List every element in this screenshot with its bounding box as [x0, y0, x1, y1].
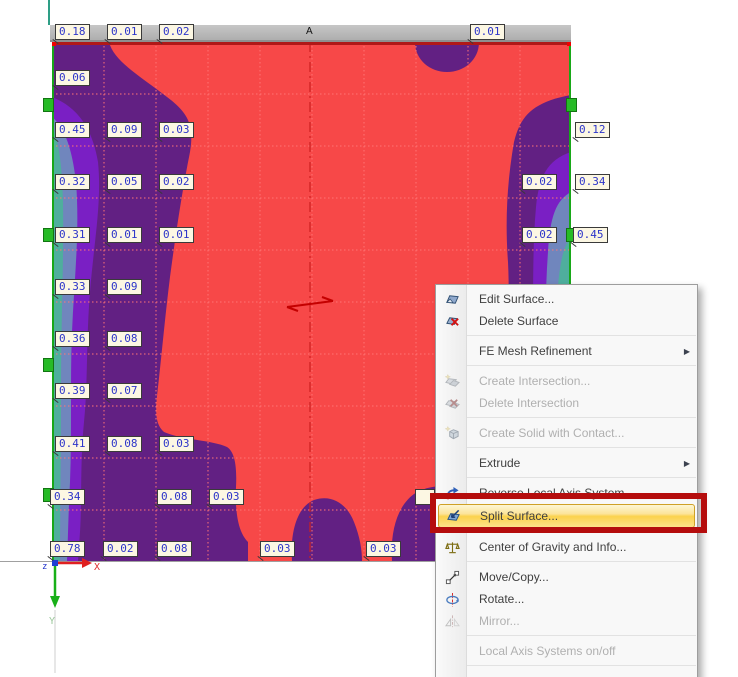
menu-separator	[436, 332, 697, 340]
value-label: 0.78	[50, 541, 85, 557]
menu-item-create-intersection: Create Intersection...	[436, 370, 697, 392]
menu-separator	[436, 662, 697, 670]
submenu-arrow-icon: ▶	[684, 347, 690, 356]
value-label: 0.03	[209, 489, 244, 505]
value-label: 0.33	[55, 279, 90, 295]
value-label: 0.03	[260, 541, 295, 557]
menu-item-label: Edit Surface...	[465, 292, 554, 306]
value-label: 0.02	[103, 541, 138, 557]
mirror-icon	[439, 613, 465, 629]
value-label: 0.03	[159, 436, 194, 452]
move-copy-icon	[439, 569, 465, 585]
annotation-highlight-box	[430, 493, 707, 533]
menu-item-fe-mesh-refinement[interactable]: FE Mesh Refinement▶	[436, 340, 697, 362]
value-label: 0.31	[55, 227, 90, 243]
menu-item-local-axis-systems-on-off: Local Axis Systems on/off	[436, 640, 697, 662]
menu-item-extrude[interactable]: Extrude▶	[436, 452, 697, 474]
support-icon	[43, 228, 54, 242]
value-label: 0.36	[55, 331, 90, 347]
menu-item-mirror: Mirror...	[436, 610, 697, 632]
coordinate-system: X Y z	[20, 548, 130, 677]
value-label: 0.34	[575, 174, 610, 190]
z-axis-label: z	[42, 562, 47, 572]
menu-item-edit-surface[interactable]: Edit Surface...	[436, 288, 697, 310]
value-label: 0.03	[366, 541, 401, 557]
menu-item-label: Local Axis Systems on/off	[465, 644, 616, 658]
section-label: A	[306, 26, 313, 37]
menu-icon-empty	[439, 643, 465, 659]
menu-icon-empty	[439, 343, 465, 359]
menu-item-label: Delete Surface	[465, 314, 558, 328]
value-label: 0.01	[159, 227, 194, 243]
value-label: 0.01	[470, 24, 505, 40]
value-label: 0.39	[55, 383, 90, 399]
menu-separator	[436, 362, 697, 370]
value-label: 0.41	[55, 436, 90, 452]
menu-separator	[436, 632, 697, 640]
menu-item-label: Mirror...	[465, 614, 520, 628]
edit-surface-icon	[439, 291, 465, 307]
menu-separator	[436, 558, 697, 566]
value-label: 0.02	[159, 24, 194, 40]
menu-item-label: Create Intersection...	[465, 374, 590, 388]
menu-separator	[436, 444, 697, 452]
delete-intersection-icon	[439, 395, 465, 411]
value-label: 0.08	[107, 331, 142, 347]
value-label: 0.09	[107, 122, 142, 138]
create-intersection-icon	[439, 373, 465, 389]
support-icon	[43, 98, 54, 112]
value-label: 0.03	[159, 122, 194, 138]
menu-item-label: FE Mesh Refinement	[465, 344, 592, 358]
value-label: 0.07	[107, 383, 142, 399]
value-label: 0.08	[157, 489, 192, 505]
menu-item-delete-surface[interactable]: Delete Surface	[436, 310, 697, 332]
center-of-gravity-icon	[439, 539, 465, 555]
menu-item-center-of-gravity-and-info[interactable]: Center of Gravity and Info...	[436, 536, 697, 558]
support-icon	[43, 358, 54, 372]
menu-item-label: Delete Intersection	[465, 396, 579, 410]
create-solid-icon	[439, 425, 465, 441]
value-label: 0.01	[107, 227, 142, 243]
x-axis-label: X	[94, 562, 100, 573]
menu-separator	[436, 474, 697, 482]
submenu-arrow-icon: ▶	[684, 459, 690, 468]
value-label: 0.08	[157, 541, 192, 557]
menu-item-label: Rotate...	[465, 592, 524, 606]
value-label: 0.45	[55, 122, 90, 138]
support-icon	[566, 98, 577, 112]
value-label: 0.02	[159, 174, 194, 190]
corner-node-right	[567, 42, 571, 46]
value-label: 0.05	[107, 174, 142, 190]
value-label: 0.06	[55, 70, 90, 86]
value-label: 0.09	[107, 279, 142, 295]
value-label: 0.34	[50, 489, 85, 505]
value-label: 0.01	[107, 24, 142, 40]
value-label: 0.18	[55, 24, 90, 40]
value-label: 0.32	[55, 174, 90, 190]
menu-item-label: Extrude	[465, 456, 520, 470]
menu-item-create-solid-with-contact: Create Solid with Contact...	[436, 422, 697, 444]
menu-item-delete-intersection: Delete Intersection	[436, 392, 697, 414]
menu-item-label: Move/Copy...	[465, 570, 549, 584]
menu-item-label: Center of Gravity and Info...	[465, 540, 626, 554]
menu-icon-empty	[439, 455, 465, 471]
menu-separator	[436, 414, 697, 422]
menu-item-rotate[interactable]: Rotate...	[436, 588, 697, 610]
value-label: 0.02	[522, 174, 557, 190]
menu-item-move-copy[interactable]: Move/Copy...	[436, 566, 697, 588]
application-canvas: A	[0, 0, 738, 677]
menu-item-label: Create Solid with Contact...	[465, 426, 624, 440]
rotate-icon	[439, 591, 465, 607]
value-label: 0.08	[107, 436, 142, 452]
edge-line-top-left	[48, 0, 50, 25]
y-axis-label: Y	[49, 616, 55, 627]
delete-surface-icon	[439, 313, 465, 329]
value-label: 0.12	[575, 122, 610, 138]
value-label: 0.45	[573, 227, 608, 243]
context-menu: Edit Surface...Delete SurfaceFE Mesh Ref…	[435, 284, 698, 677]
value-label: 0.02	[522, 227, 557, 243]
